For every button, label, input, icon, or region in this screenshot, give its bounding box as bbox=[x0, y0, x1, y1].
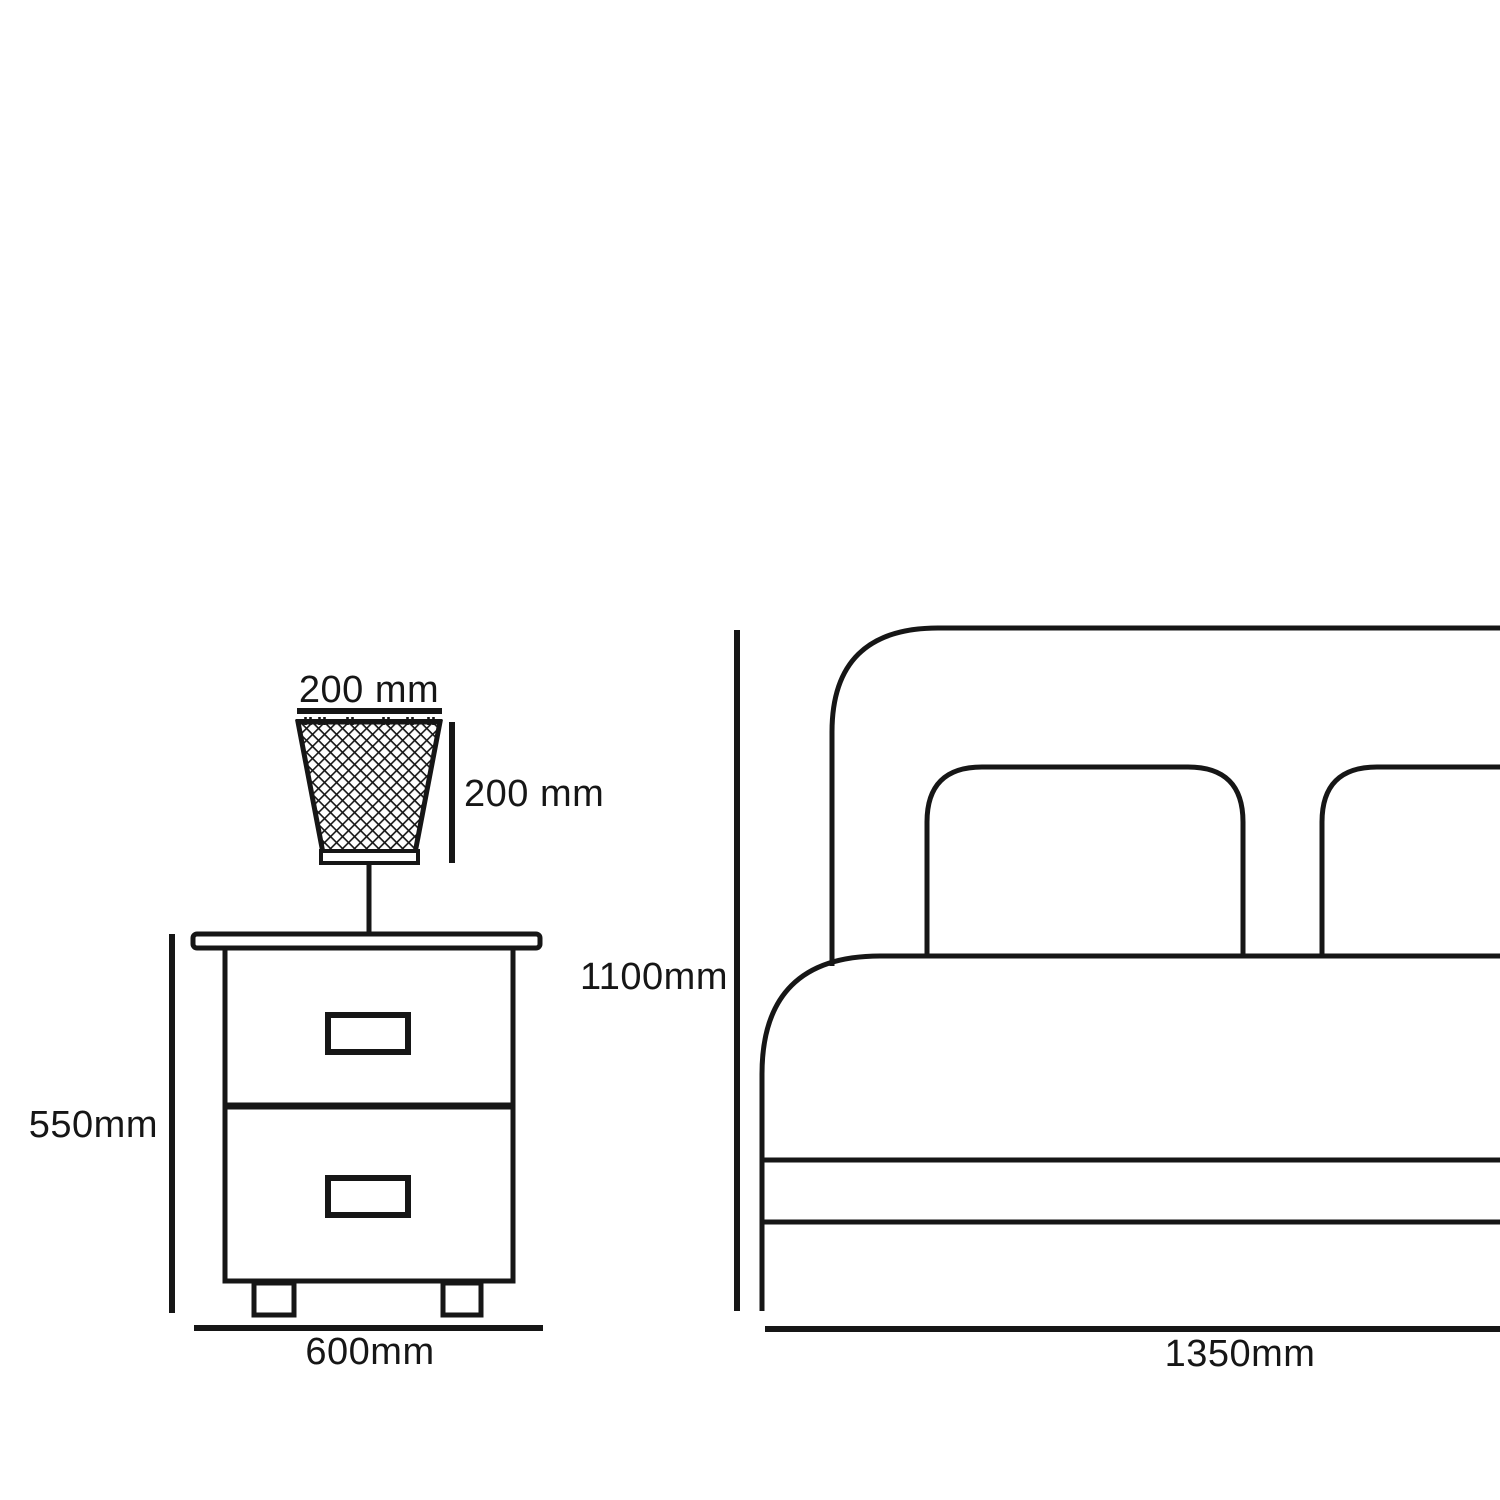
dimension-labels: 200 mm 200 mm 550mm 600mm 1100mm 1350mm bbox=[29, 669, 1316, 1375]
nightstand-foot-left bbox=[254, 1283, 294, 1315]
drawer-handle-top bbox=[328, 1015, 408, 1052]
bed-width-label: 1350mm bbox=[1165, 1333, 1316, 1375]
table-lamp bbox=[296, 717, 442, 938]
bed-pillow-left bbox=[927, 767, 1243, 956]
drawer-handle-bottom bbox=[328, 1178, 408, 1215]
nightstand-body bbox=[225, 948, 513, 1281]
bed-mattress bbox=[762, 956, 1500, 1311]
lamp-width-label: 200 mm bbox=[299, 669, 439, 711]
nightstand-height-label: 550mm bbox=[29, 1104, 158, 1146]
diagram-canvas: 200 mm 200 mm 550mm 600mm 1100mm 1350mm bbox=[0, 0, 1500, 1500]
nightstand bbox=[193, 934, 540, 1315]
bed bbox=[762, 628, 1500, 1311]
nightstand-width-label: 600mm bbox=[305, 1331, 434, 1373]
lamp-shade-bottom-band bbox=[321, 851, 418, 863]
bed-pillow-right bbox=[1322, 767, 1500, 956]
bed-height-label: 1100mm bbox=[580, 956, 728, 998]
lamp-height-label: 200 mm bbox=[464, 773, 604, 815]
lamp-shade bbox=[298, 722, 440, 853]
furniture-dimension-diagram: 200 mm 200 mm 550mm 600mm 1100mm 1350mm bbox=[0, 0, 1500, 1500]
nightstand-foot-right bbox=[443, 1283, 481, 1315]
nightstand-tabletop bbox=[193, 934, 540, 948]
